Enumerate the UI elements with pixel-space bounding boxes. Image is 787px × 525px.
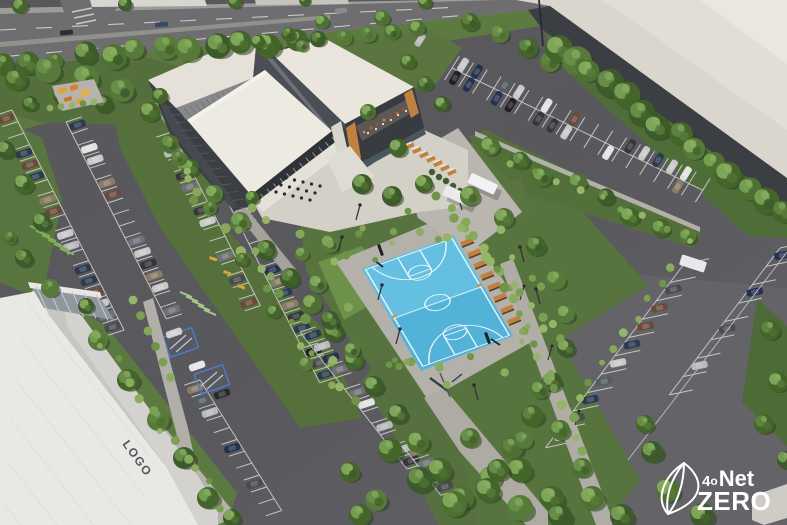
svg-text:ZERO: ZERO	[697, 486, 771, 516]
